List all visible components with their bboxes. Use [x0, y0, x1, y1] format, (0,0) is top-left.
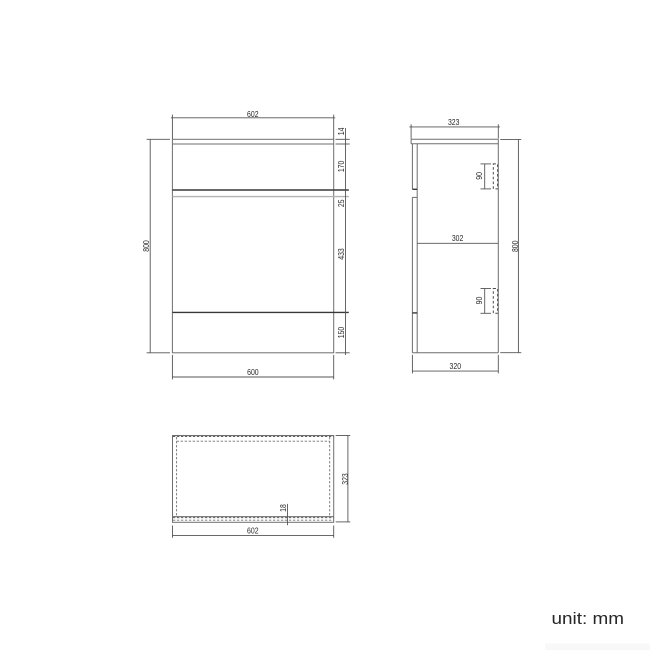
svg-text:323: 323: [341, 473, 350, 485]
svg-text:800: 800: [142, 240, 151, 252]
svg-text:170: 170: [337, 160, 346, 172]
svg-text:18: 18: [279, 504, 288, 512]
svg-text:90: 90: [475, 296, 484, 304]
svg-text:25: 25: [337, 199, 346, 207]
svg-text:320: 320: [450, 362, 462, 371]
svg-text:800: 800: [511, 240, 520, 252]
svg-text:602: 602: [247, 110, 259, 119]
svg-text:600: 600: [247, 368, 259, 377]
svg-text:323: 323: [448, 118, 460, 127]
svg-text:150: 150: [337, 326, 346, 338]
svg-text:14: 14: [337, 127, 346, 135]
svg-text:unit: mm: unit: mm: [552, 609, 625, 628]
svg-text:433: 433: [337, 248, 346, 260]
svg-text:90: 90: [475, 172, 484, 180]
svg-text:602: 602: [247, 527, 259, 536]
svg-text:302: 302: [452, 234, 464, 243]
